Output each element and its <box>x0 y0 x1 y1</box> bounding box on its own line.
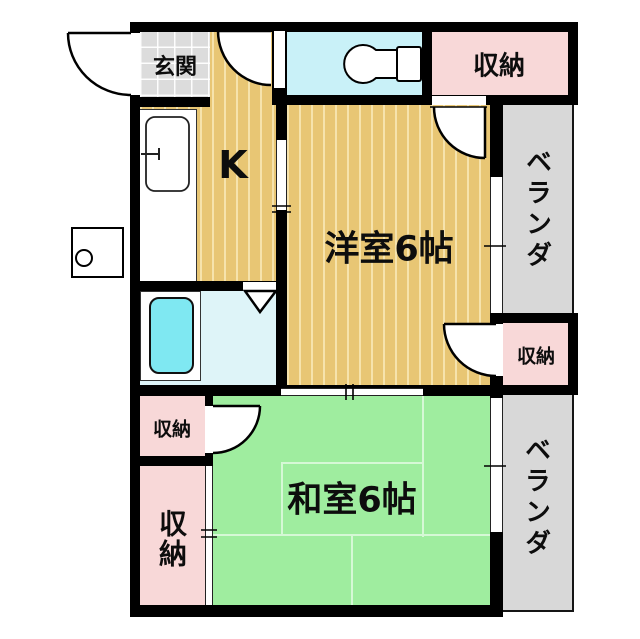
toilet-door-icon <box>218 31 271 85</box>
western-room-label: 洋室6帖 <box>324 221 453 272</box>
veranda-upper-label: ベランダ <box>519 148 556 272</box>
storage-top-right-label: 収納 <box>473 46 525 83</box>
folding-door-icon <box>245 291 276 312</box>
entrance-door-icon <box>68 33 131 95</box>
storage-mid-right-label: 収納 <box>517 342 555 369</box>
genkan-label: 玄関 <box>153 49 197 81</box>
veranda-lower-label: ベランダ <box>518 436 555 560</box>
toilet-icon <box>344 45 421 83</box>
storage-left-upper-label: 収納 <box>153 415 191 442</box>
japanese-room-label: 和室6帖 <box>287 472 416 523</box>
storage-mid-right-door-icon <box>444 324 496 376</box>
kitchen-label: K <box>218 143 247 187</box>
storage-left-upper-door-icon <box>213 406 260 453</box>
floor-plan: 玄関 K 洋室6帖 和室6帖 収納 収納 収納 収納 ベランダ ベランダ <box>0 0 640 639</box>
kitchen-sink-icon <box>141 117 189 191</box>
storage-left-lower-label: 収納 <box>151 509 191 569</box>
drain-circle-icon <box>76 250 92 266</box>
storage-top-right-door-icon <box>430 107 487 158</box>
